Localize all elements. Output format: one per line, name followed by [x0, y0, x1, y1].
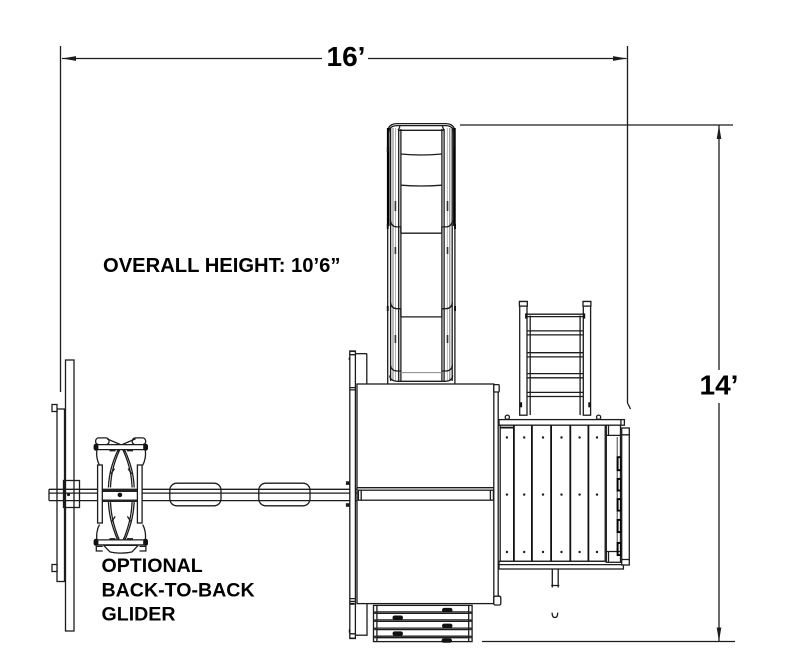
svg-text:16’: 16’ — [327, 41, 366, 72]
svg-text:BACK-TO-BACK: BACK-TO-BACK — [102, 579, 255, 601]
svg-text:OPTIONAL: OPTIONAL — [102, 555, 203, 577]
svg-text:OVERALL HEIGHT: 10’6”: OVERALL HEIGHT: 10’6” — [103, 255, 340, 277]
svg-text:14’: 14’ — [700, 370, 739, 401]
svg-text:GLIDER: GLIDER — [102, 604, 176, 626]
